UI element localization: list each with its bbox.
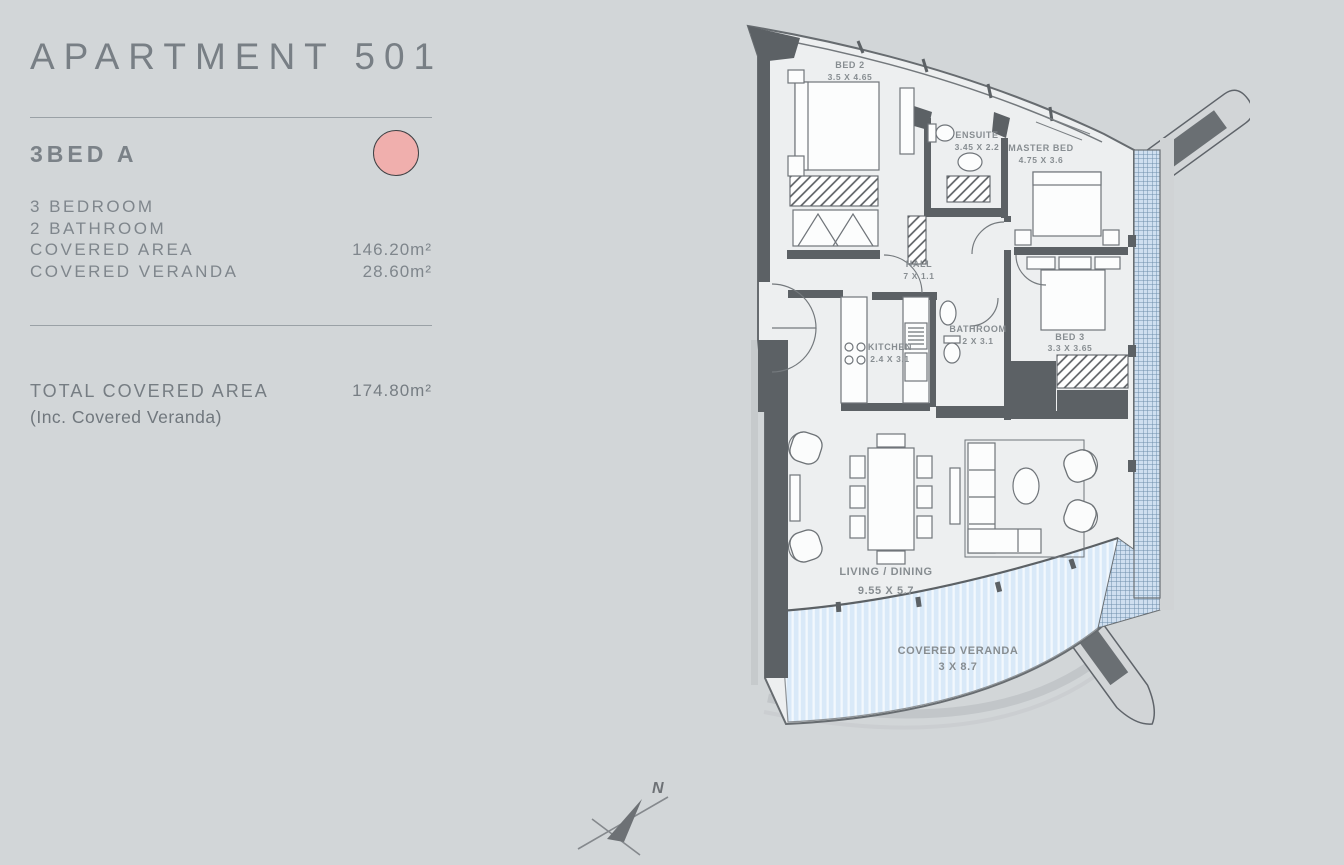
spec-label: COVERED VERANDA — [30, 262, 238, 284]
room-dims-covered-veranda: 3 X 8.7 — [938, 661, 977, 673]
room-label-living-dining: LIVING / DINING — [839, 566, 932, 578]
room-dims-bathroom: 2 X 3.1 — [962, 336, 993, 346]
total-area-label: TOTAL COVERED AREA — [30, 381, 269, 402]
spec-value: 146.20m² — [352, 240, 432, 262]
room-dims-master-bed: 4.75 X 3.6 — [1019, 155, 1064, 165]
north-compass: N — [560, 775, 700, 860]
right-glazing-strip — [1134, 150, 1160, 598]
room-label-bed2: BED 2 — [835, 60, 865, 70]
room-dims-ensuite: 3.45 X 2.2 — [955, 142, 1000, 152]
spec-value: 28.60m² — [363, 262, 432, 284]
spec-list: 3 BEDROOM 2 BATHROOM COVERED AREA 146.20… — [30, 197, 432, 283]
room-label-bathroom: BATHROOM — [949, 324, 1006, 334]
room-dims-bed2: 3.5 X 4.65 — [828, 72, 873, 82]
spec-label: 2 BATHROOM — [30, 219, 166, 241]
room-label-kitchen: KITCHEN — [868, 342, 912, 352]
room-label-bed3: BED 3 — [1055, 332, 1085, 342]
left-outer-trim — [751, 340, 758, 685]
room-label-master-bed: MASTER BED — [1008, 143, 1074, 153]
unit-color-dot — [373, 130, 419, 176]
room-label-covered-veranda: COVERED VERANDA — [898, 645, 1019, 657]
room-dims-living-dining: 9.55 X 5.7 — [858, 585, 914, 597]
floor-plan: BED 2 3.5 X 4.65 ENSUITE 3.45 X 2.2 MAST… — [738, 10, 1250, 760]
divider-line-top — [30, 117, 432, 118]
floor-plan-svg: BED 2 3.5 X 4.65 ENSUITE 3.45 X 2.2 MAST… — [738, 10, 1250, 760]
right-outer-band — [1160, 138, 1174, 610]
spec-row-bedrooms: 3 BEDROOM — [30, 197, 432, 219]
north-compass-svg: N — [560, 775, 700, 860]
total-area-note: (Inc. Covered Veranda) — [30, 407, 222, 428]
unit-type-label: 3BED A — [30, 141, 138, 168]
north-arrow-icon — [607, 799, 642, 842]
north-label: N — [652, 780, 664, 797]
spec-row-covered-area: COVERED AREA 146.20m² — [30, 240, 432, 262]
total-area-row: TOTAL COVERED AREA 174.80m² — [30, 381, 432, 402]
room-dims-hall: 7 X 1.1 — [903, 271, 934, 281]
total-area-value: 174.80m² — [352, 381, 432, 402]
spec-label: 3 BEDROOM — [30, 197, 155, 219]
room-label-hall: HALL — [906, 259, 932, 269]
room-dims-bed3: 3.3 X 3.65 — [1048, 343, 1093, 353]
room-label-ensuite: ENSUITE — [955, 130, 998, 140]
divider-line-bottom — [30, 325, 432, 326]
room-dims-kitchen: 2.4 X 3.1 — [870, 354, 909, 364]
spec-row-covered-veranda: COVERED VERANDA 28.60m² — [30, 262, 432, 284]
spec-row-bathrooms: 2 BATHROOM — [30, 219, 432, 241]
page-title: APARTMENT 501 — [30, 36, 432, 78]
spec-label: COVERED AREA — [30, 240, 194, 262]
